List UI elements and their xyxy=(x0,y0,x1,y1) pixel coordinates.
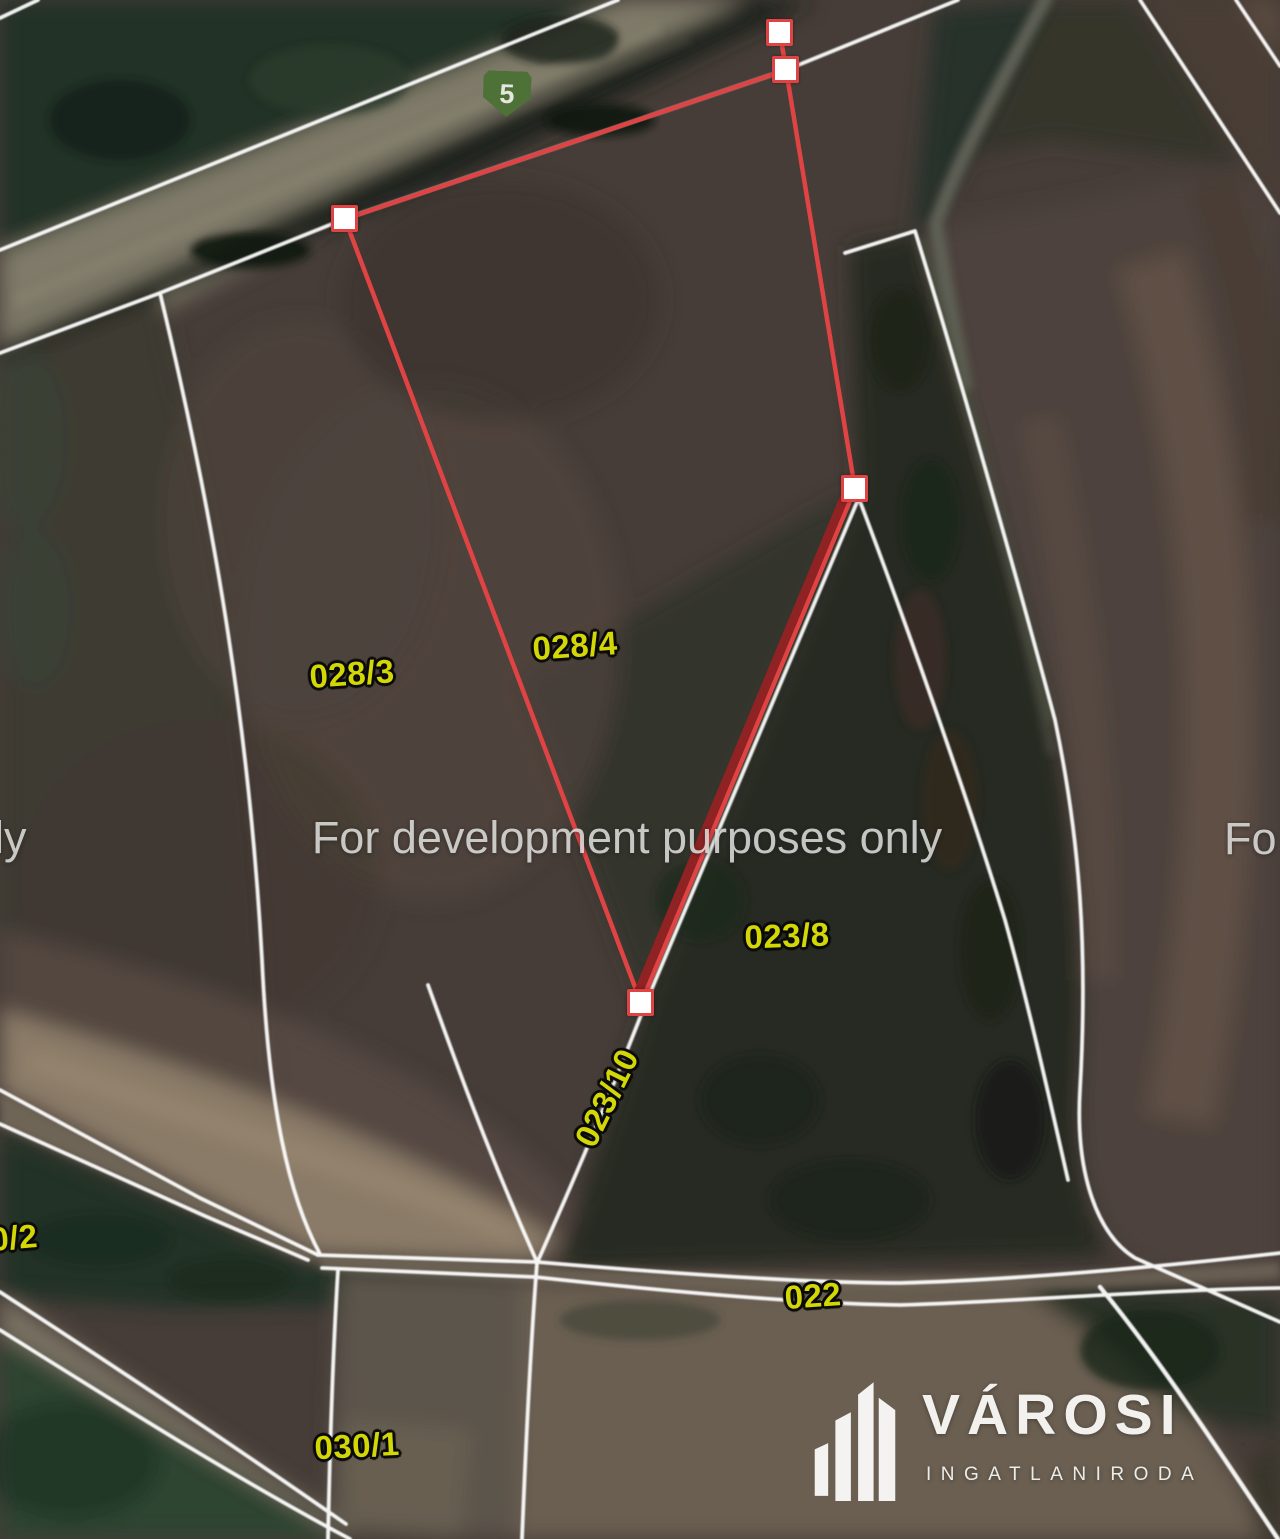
parcel-label: 023/8 xyxy=(744,916,830,957)
agency-logo: VÁROSI INGATLANIRODA xyxy=(810,1372,1240,1504)
vertex-marker[interactable] xyxy=(627,989,654,1016)
parcel-label: 028/4 xyxy=(531,624,619,668)
watermark-text-partial: ly xyxy=(0,812,27,864)
satellite-map-layer xyxy=(0,0,1280,1539)
logo-name: VÁROSI xyxy=(922,1382,1183,1448)
parcel-label: 028/3 xyxy=(308,652,396,696)
map-canvas[interactable]: 5 028/3 028/4 023/8 023/10 022 030/1 0/2… xyxy=(0,0,1280,1539)
vertex-marker[interactable] xyxy=(772,56,799,83)
road-shield-number: 5 xyxy=(499,78,515,110)
watermark-text-partial: Fo xyxy=(1224,813,1277,865)
parcel-label: 022 xyxy=(783,1275,842,1317)
buildings-icon xyxy=(812,1374,898,1501)
parcel-label: 030/1 xyxy=(314,1425,401,1467)
logo-subtitle: INGATLANIRODA xyxy=(926,1464,1203,1486)
watermark-text: For development purposes only xyxy=(312,812,942,864)
vertex-marker[interactable] xyxy=(331,205,358,232)
parcel-label: 0/2 xyxy=(0,1217,39,1259)
vertex-marker[interactable] xyxy=(841,475,868,502)
vertex-marker[interactable] xyxy=(766,19,793,46)
